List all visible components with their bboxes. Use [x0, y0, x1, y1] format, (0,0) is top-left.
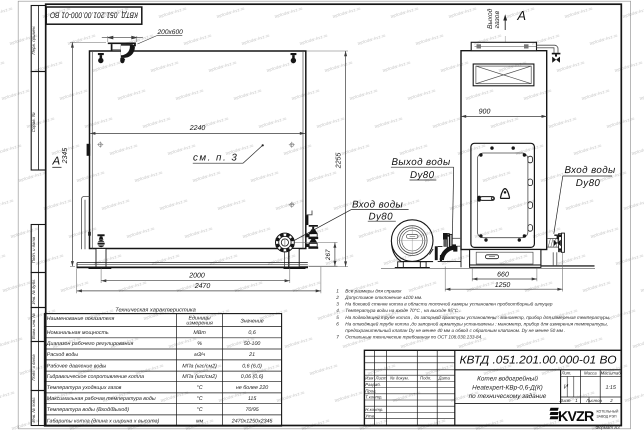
svg-text:°С: °С — [197, 385, 203, 391]
svg-text:1250: 1250 — [495, 282, 511, 289]
svg-text:Листов: Листов — [585, 398, 602, 403]
svg-text:И: И — [564, 384, 569, 391]
svg-text:21: 21 — [248, 352, 255, 358]
svg-text:Масса: Масса — [584, 371, 597, 376]
svg-text:Изм: Изм — [365, 376, 373, 381]
svg-text:200х600: 200х600 — [157, 29, 184, 36]
svg-text:2000: 2000 — [188, 272, 205, 279]
svg-text:2: 2 — [335, 295, 339, 300]
svg-text:Пров.: Пров. — [365, 388, 376, 393]
svg-text:МВт: МВт — [193, 330, 206, 336]
svg-text:Допустимое отклонение ±100 мм: Допустимое отклонение ±100 мм. — [344, 295, 422, 300]
svg-text:Температура уходящих газов: Температура уходящих газов — [47, 385, 122, 391]
svg-text:Расход воды: Расход воды — [47, 352, 78, 358]
svg-text:Подп. и дата: Подп. и дата — [31, 236, 36, 263]
svg-text:На отводящей трубе котла ,до з: На отводящей трубе котла ,до запорной ар… — [345, 322, 608, 327]
svg-text:6: 6 — [336, 322, 339, 327]
svg-text:м3/ч: м3/ч — [194, 352, 205, 358]
svg-text:Гидравлическое сопротивление к: Гидравлическое сопротивление котла — [47, 374, 144, 380]
svg-text:7: 7 — [336, 335, 339, 340]
svg-text:KVZR: KVZR — [558, 409, 594, 425]
svg-text:измерения: измерения — [186, 321, 213, 327]
svg-text:Выход: Выход — [487, 8, 494, 29]
svg-text:МПа (кгс/см2): МПа (кгс/см2) — [182, 374, 217, 380]
svg-text:°С: °С — [197, 396, 203, 402]
svg-text:Дата: Дата — [438, 376, 451, 381]
svg-text:Dy80: Dy80 — [576, 178, 601, 189]
svg-text:Выход воды: Выход воды — [392, 157, 451, 168]
svg-text:КВТД .051.201.00.000-01 ВО: КВТД .051.201.00.000-01 ВО — [460, 355, 617, 367]
svg-text:Т.контр.: Т.контр. — [365, 395, 382, 400]
svg-text:На боковой стенке котла в обла: На боковой стенке котла в области топочн… — [345, 302, 553, 307]
svg-text:3: 3 — [336, 302, 339, 307]
svg-text:0,6: 0,6 — [248, 330, 255, 336]
svg-text:70/95: 70/95 — [245, 407, 258, 413]
svg-text:№ докум.: № докум. — [390, 376, 409, 381]
svg-text:5: 5 — [336, 315, 339, 320]
svg-text:Утв.: Утв. — [365, 413, 375, 418]
svg-text:°С: °С — [197, 407, 203, 413]
svg-text:газов: газов — [494, 11, 501, 29]
svg-text:1: 1 — [336, 288, 339, 293]
svg-text:Подп.: Подп. — [420, 376, 431, 381]
svg-text:Н.контр.: Н.контр. — [365, 407, 383, 412]
svg-text:Разраб.: Разраб. — [365, 382, 381, 387]
svg-text:Лист: Лист — [375, 376, 387, 381]
svg-text:предохранительный клапан Dу н: предохранительный клапан Dу не менее 40 … — [345, 328, 565, 333]
svg-text:Лит.: Лит. — [560, 371, 571, 376]
svg-text:А: А — [52, 156, 61, 168]
svg-text:Котел водогрейный: Котел водогрейный — [477, 376, 538, 383]
svg-text:1:15: 1:15 — [605, 385, 616, 391]
svg-text:115: 115 — [248, 396, 256, 402]
svg-text:Наименование показателя: Наименование показателя — [47, 316, 115, 322]
svg-text:КОТЕЛЬНЫЙ: КОТЕЛЬНЫЙ — [597, 409, 619, 414]
svg-text:Инв. № дубл.: Инв. № дубл. — [31, 279, 36, 305]
svg-text:ЗАВОД РЭП: ЗАВОД РЭП — [597, 414, 618, 418]
svg-text:900: 900 — [479, 109, 491, 116]
svg-text:Перв. примен.: Перв. примен. — [31, 25, 36, 54]
svg-text:Температура воды (Вход/Выход): Температура воды (Вход/Выход) — [47, 407, 129, 413]
svg-text:660: 660 — [497, 272, 509, 279]
svg-text:Номинальная мощность: Номинальная мощность — [47, 330, 109, 336]
svg-text:%: % — [197, 341, 202, 347]
